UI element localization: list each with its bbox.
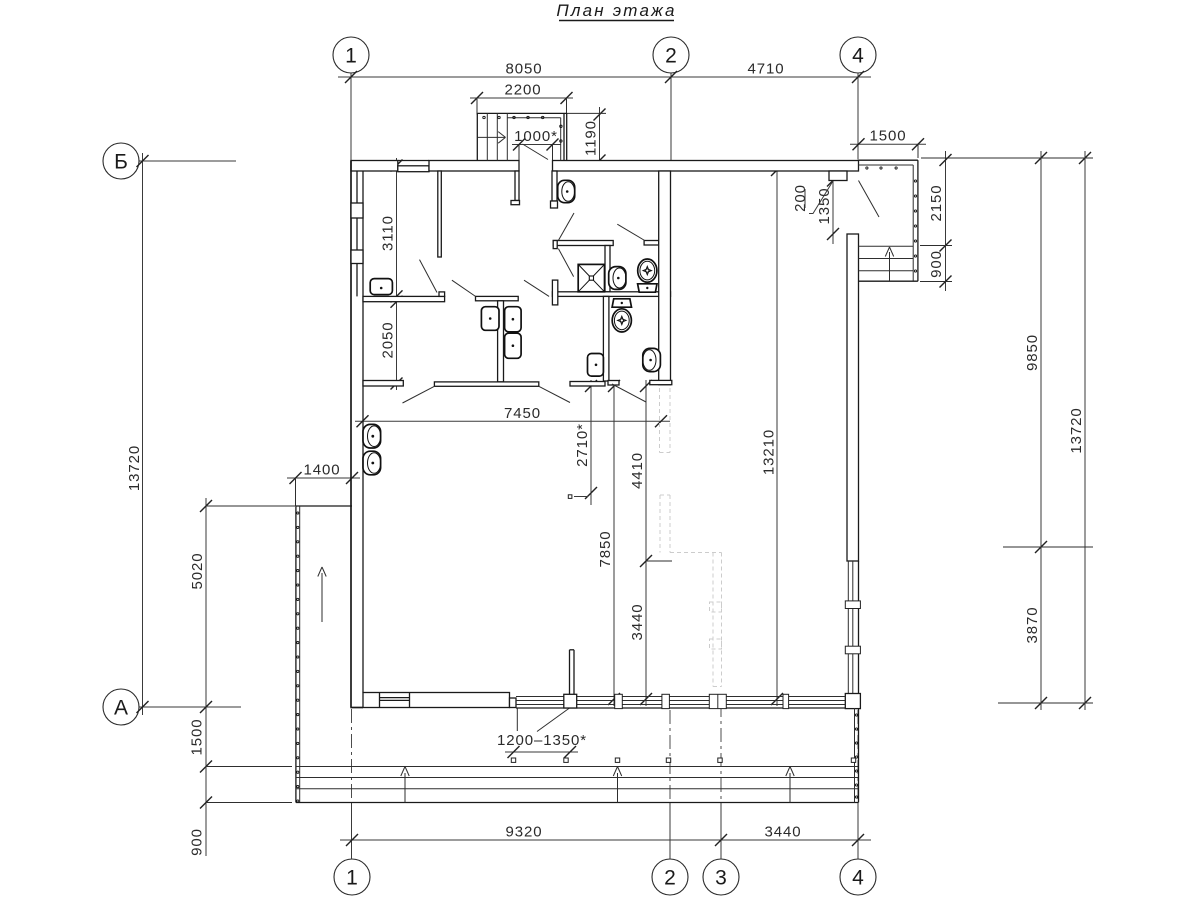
svg-text:7850: 7850	[597, 531, 614, 568]
svg-text:Б: Б	[114, 150, 128, 173]
svg-text:8050: 8050	[506, 61, 543, 78]
svg-text:3: 3	[715, 866, 727, 889]
svg-text:3870: 3870	[1024, 607, 1041, 644]
svg-text:3440: 3440	[765, 824, 802, 841]
svg-text:1000*: 1000*	[514, 128, 558, 145]
svg-text:1500: 1500	[189, 719, 206, 756]
svg-text:1400: 1400	[304, 462, 341, 479]
svg-text:9850: 9850	[1024, 334, 1041, 371]
svg-text:7450: 7450	[504, 405, 541, 422]
svg-text:4410: 4410	[629, 452, 646, 489]
svg-text:А: А	[114, 696, 128, 719]
svg-text:План этажа: План этажа	[556, 1, 676, 20]
svg-text:1: 1	[345, 44, 357, 67]
svg-text:900: 900	[189, 828, 206, 856]
svg-text:5020: 5020	[189, 553, 206, 590]
svg-text:13720: 13720	[1068, 407, 1085, 453]
svg-text:3110: 3110	[380, 215, 397, 251]
svg-text:1500: 1500	[870, 128, 907, 145]
svg-text:3440: 3440	[629, 604, 646, 641]
svg-text:2: 2	[664, 866, 676, 889]
svg-text:2200: 2200	[505, 82, 542, 99]
svg-text:13720: 13720	[126, 445, 143, 491]
svg-text:2: 2	[665, 44, 677, 67]
svg-text:1190: 1190	[583, 120, 600, 156]
svg-text:4: 4	[852, 44, 864, 67]
svg-text:2150: 2150	[928, 185, 945, 222]
svg-text:1350: 1350	[816, 188, 833, 225]
svg-text:13210: 13210	[761, 429, 778, 475]
svg-text:1: 1	[346, 866, 358, 889]
svg-text:200: 200	[792, 184, 809, 212]
svg-text:900: 900	[928, 250, 945, 278]
svg-text:9320: 9320	[506, 824, 543, 841]
svg-text:1200–1350*: 1200–1350*	[497, 732, 587, 749]
svg-text:2050: 2050	[380, 322, 397, 359]
svg-text:2710*: 2710*	[574, 423, 591, 467]
svg-text:4710: 4710	[748, 61, 785, 78]
svg-text:4: 4	[852, 866, 864, 889]
